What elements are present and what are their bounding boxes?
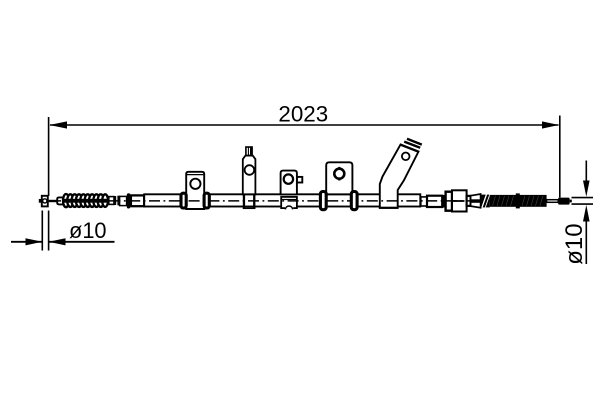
svg-text:2023: 2023 [278,102,328,127]
svg-text:ø10: ø10 [561,223,588,264]
svg-text:ø10: ø10 [69,218,107,243]
